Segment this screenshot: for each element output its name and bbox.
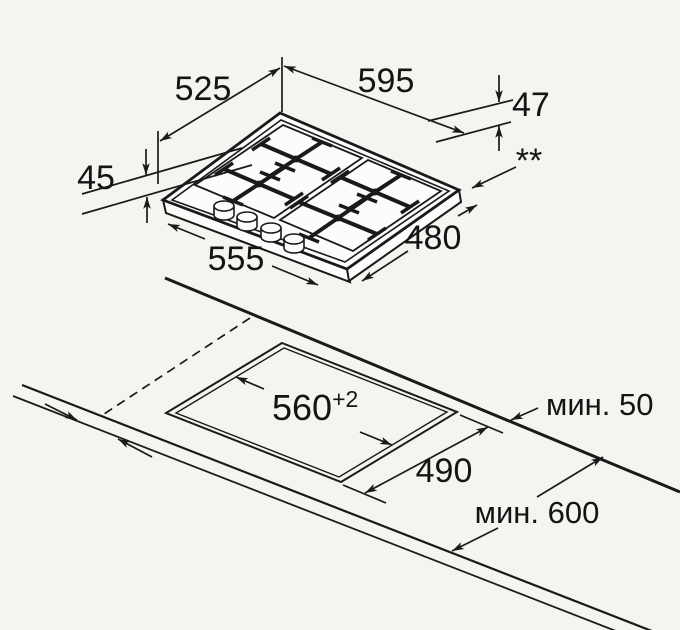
hob-width-label: 595: [358, 62, 415, 100]
min-rear-clearance-label: мин. 50: [546, 387, 653, 422]
dim-min-rear-clearance: мин. 50: [511, 387, 653, 422]
extension-tick-south: [343, 485, 386, 503]
footnote-asterisks-label: **: [516, 142, 542, 180]
hob-grate-depth-label: 525: [175, 70, 232, 108]
control-knob-4: [284, 234, 304, 253]
extension-line-upper: [428, 100, 513, 121]
control-knob-1: [214, 201, 234, 220]
dim-overall-width: 595: [284, 62, 464, 133]
control-knob-2: [237, 212, 257, 231]
hob-height-below-label: 47: [512, 86, 550, 124]
dim-cutout-width: 560+2: [236, 377, 392, 445]
worktop-cutout-view: 560+2 490 мин. 50 мин. 600: [13, 278, 680, 630]
footnote-marker: **: [472, 142, 542, 188]
dim-cutout-depth: 490: [343, 415, 503, 503]
dim-height-right: 47: [428, 75, 550, 151]
cutout-depth-label: 490: [416, 452, 473, 490]
min-worktop-depth-label: мин. 600: [475, 495, 600, 530]
hob-isometric-view: 525 595 47 ** 45: [77, 57, 550, 285]
installation-diagram: 525 595 47 ** 45: [0, 0, 680, 630]
dim-min-worktop-depth: мин. 600: [452, 457, 603, 551]
hob-depth-label: 480: [405, 219, 462, 257]
cutout-width-label: 560+2: [272, 386, 358, 428]
installation-diagram-page: 525 595 47 ** 45: [0, 0, 680, 630]
worktop-side-edge-dashed: [101, 318, 250, 416]
hob-height-above-label: 45: [77, 159, 115, 197]
hob-grate-width-label: 555: [208, 240, 265, 278]
